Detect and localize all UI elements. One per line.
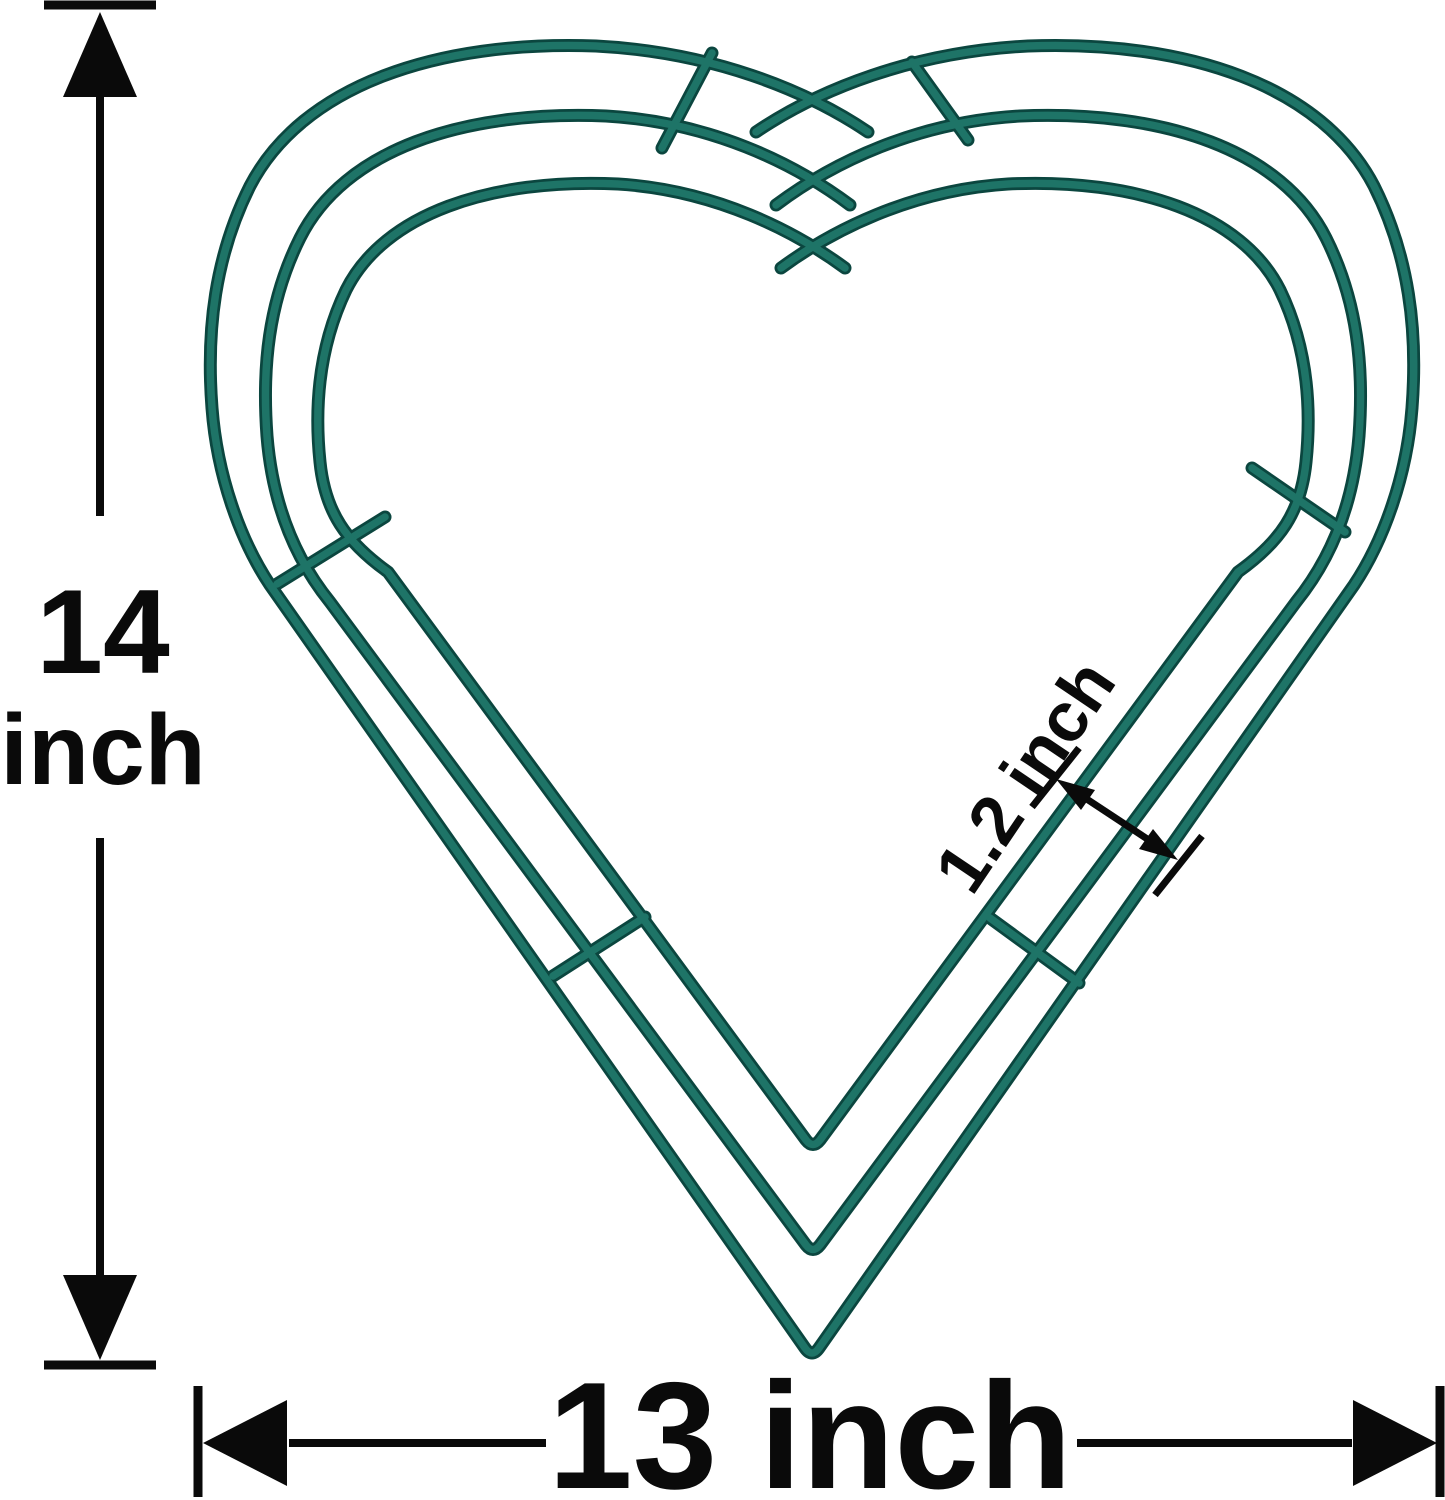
heart-wire-middle (265, 115, 1360, 1249)
height-dimension-value: 14 (0, 572, 206, 692)
arrow-down-icon (63, 1275, 137, 1360)
heart-wreath-frame-graphic (0, 0, 1445, 1500)
wire-cross-ties (277, 53, 1345, 983)
arrow-left-icon (203, 1400, 287, 1486)
arrow-right-icon (1353, 1400, 1437, 1486)
arrow-up-icon (63, 12, 137, 97)
width-dimension-label: 13 inch (548, 1360, 1072, 1500)
height-dimension-unit: inch (0, 700, 206, 800)
heart-wire-inner (318, 183, 1308, 1144)
product-dimension-diagram: 14 inch 13 inch 1.2 inch (0, 0, 1445, 1500)
